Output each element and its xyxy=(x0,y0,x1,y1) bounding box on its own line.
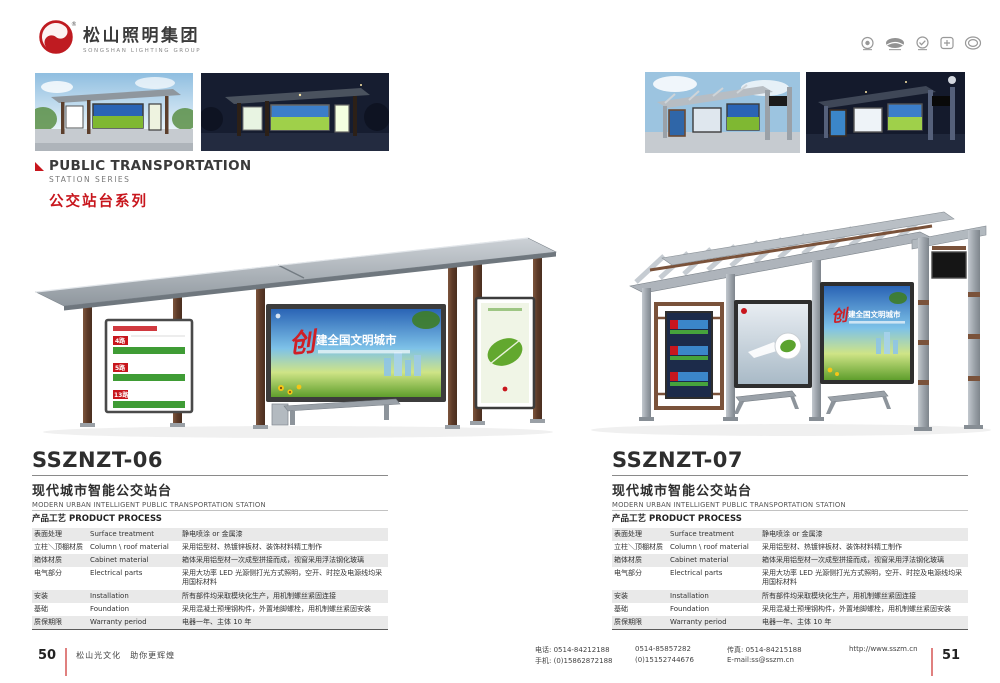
row-label-en: Warranty period xyxy=(670,618,762,627)
row-label-cn: 箱体材质 xyxy=(32,556,90,565)
render-ssznzt-07: 创 建全国文明城市 xyxy=(576,200,996,449)
product-name-en: MODERN URBAN INTELLIGENT PUBLIC TRANSPOR… xyxy=(612,501,968,509)
row-description: 采用铝型材、热镀锌板材、装饰材料精工制作 xyxy=(762,543,968,552)
billboard-lightbox: 创 建全国文明城市 xyxy=(266,304,446,402)
product-name-en: MODERN URBAN INTELLIGENT PUBLIC TRANSPOR… xyxy=(32,501,388,509)
footer-right: 51 xyxy=(931,648,960,676)
fax-line: 传真: 0514-84215188 xyxy=(727,645,849,656)
process-table-07: 产品工艺 PRODUCT PROCESS 表面处理 Surface treatm… xyxy=(612,510,968,630)
section-title-en: PUBLIC TRANSPORTATION xyxy=(49,158,251,174)
row-description: 静电喷涂 or 金属漆 xyxy=(762,530,968,539)
company-logo: ® 松山照明集团 SONGSHAN LIGHTING GROUP xyxy=(38,18,201,56)
photo-shelter06-night xyxy=(201,72,389,152)
product-code: SSZNZT-06 xyxy=(32,448,388,472)
table-title: 产品工艺 PRODUCT PROCESS xyxy=(612,510,968,528)
table-body: 表面处理 Surface treatment 静电喷涂 or 金属漆 立柱＼顶棚… xyxy=(612,528,968,629)
leaf-poster-lightbox xyxy=(476,298,534,408)
product-name-cn: 现代城市智能公交站台 xyxy=(612,480,968,499)
photo-shelter07-night xyxy=(806,72,965,153)
row-description: 电器一年、主体 10 年 xyxy=(182,618,388,627)
logo-swirl-icon: ® xyxy=(38,18,76,56)
table-row: 箱体材质 Cabinet material 箱体采用铝型材一次成型拼接而成，视窗… xyxy=(612,554,968,567)
row-label-en: Installation xyxy=(670,592,762,601)
row-label-en: Column \ roof material xyxy=(90,543,182,552)
table-row: 质保期限 Warranty period 电器一年、主体 10 年 xyxy=(612,616,968,629)
trademark-symbol: ® xyxy=(71,21,76,28)
row-label-cn: 安装 xyxy=(32,592,90,601)
row-label-cn: 质保期限 xyxy=(32,618,90,627)
ground-shadow xyxy=(43,426,553,438)
page-number-left: 50 xyxy=(38,648,56,663)
divider xyxy=(32,475,388,476)
row-label-cn: 安装 xyxy=(612,592,670,601)
tel-2: 0514-85857282 xyxy=(635,645,727,656)
logo-text-en: SONGSHAN LIGHTING GROUP xyxy=(83,48,201,54)
red-divider-bar xyxy=(65,648,67,676)
row-label-cn: 质保期限 xyxy=(612,618,670,627)
table-row: 立柱＼顶棚材质 Column \ roof material 采用铝型材、热镀锌… xyxy=(32,541,388,554)
table-body: 表面处理 Surface treatment 静电喷涂 or 金属漆 立柱＼顶棚… xyxy=(32,528,388,629)
catalog-spread: ® 松山照明集团 SONGSHAN LIGHTING GROUP xyxy=(0,0,1000,683)
ad-headline: 建全国文明城市 xyxy=(316,333,397,347)
section-heading: PUBLIC TRANSPORTATION STATION SERIES 公交站… xyxy=(35,158,251,211)
mobile-2: (0)15152744676 xyxy=(635,656,727,667)
cert-badge-4-icon xyxy=(939,36,955,51)
page-number-right: 51 xyxy=(942,648,960,663)
row-description: 静电喷涂 or 金属漆 xyxy=(182,530,388,539)
red-divider-bar xyxy=(931,648,933,676)
tel-line: 电话: 0514-84212188 xyxy=(535,645,635,656)
table-row: 立柱＼顶棚材质 Column \ roof material 采用铝型材、热镀锌… xyxy=(612,541,968,554)
row-description: 箱体采用铝型材一次成型拼接而成，视窗采用浮法钢化玻璃 xyxy=(762,556,968,565)
row-label-cn: 表面处理 xyxy=(32,530,90,539)
route-badge-3: 13路 xyxy=(114,391,129,399)
cert-badge-2-icon xyxy=(884,36,906,51)
row-label-cn: 箱体材质 xyxy=(612,556,670,565)
row-description: 采用大功率 LED 光源侧打光方式照明，空开、时控及电源线均采用国标材料 xyxy=(182,569,388,587)
row-label-en: Warranty period xyxy=(90,618,182,627)
cert-badge-3-icon xyxy=(915,36,930,51)
row-label-cn: 基础 xyxy=(612,605,670,614)
section-marker-icon xyxy=(35,162,44,171)
row-description: 采用混凝土预埋钢构件，外置地脚螺栓，用机制螺丝紧固安装 xyxy=(762,605,968,614)
row-label-en: Foundation xyxy=(670,605,762,614)
email: E-mail:ss@sszm.cn xyxy=(727,656,849,667)
row-description: 采用铝型材、热镀锌板材、装饰材料精工制作 xyxy=(182,543,388,552)
route-badge-1: 4路 xyxy=(115,337,126,345)
row-description: 所有部件均采取模块化生产，用机制螺丝紧固连接 xyxy=(762,592,968,601)
row-label-cn: 基础 xyxy=(32,605,90,614)
row-label-en: Column \ roof material xyxy=(670,543,762,552)
bus-route-board: 4路 5路 13路 xyxy=(106,320,192,412)
footer-left: 50 松山光文化 助你更辉煌 xyxy=(38,648,175,676)
table-row: 箱体材质 Cabinet material 箱体采用铝型材一次成型拼接而成，视窗… xyxy=(32,554,388,567)
render-ssznzt-06: 4路 5路 13路 创 建全国文明城市 xyxy=(28,208,563,452)
product-block-06: SSZNZT-06 现代城市智能公交站台 MODERN URBAN INTELL… xyxy=(32,448,388,509)
row-label-cn: 表面处理 xyxy=(612,530,670,539)
table-row: 表面处理 Surface treatment 静电喷涂 or 金属漆 xyxy=(32,528,388,541)
footer-contact: 电话: 0514-84212188 0514-85857282 传真: 0514… xyxy=(535,645,959,667)
table-row: 安装 Installation 所有部件均采取模块化生产，用机制螺丝紧固连接 xyxy=(612,590,968,603)
cert-badge-5-icon xyxy=(964,36,982,51)
row-label-en: Cabinet material xyxy=(670,556,762,565)
section-subtitle-en: STATION SERIES xyxy=(49,175,251,184)
row-label-en: Foundation xyxy=(90,605,182,614)
process-table-06: 产品工艺 PRODUCT PROCESS 表面处理 Surface treatm… xyxy=(32,510,388,630)
table-row: 电气部分 Electrical parts 采用大功率 LED 光源侧打光方式照… xyxy=(32,567,388,589)
product-code: SSZNZT-07 xyxy=(612,448,968,472)
row-label-en: Electrical parts xyxy=(90,569,182,587)
row-label-cn: 电气部分 xyxy=(32,569,90,587)
row-description: 采用混凝土预埋钢构件，外置地脚螺栓，用机制螺丝紧固安装 xyxy=(182,605,388,614)
row-label-en: Cabinet material xyxy=(90,556,182,565)
product-name-cn: 现代城市智能公交站台 xyxy=(32,480,388,499)
photo-shelter06-day xyxy=(35,72,193,152)
mobile-line: 手机: (0)15862872188 xyxy=(535,656,635,667)
table-row: 电气部分 Electrical parts 采用大功率 LED 光源侧打光方式照… xyxy=(612,567,968,589)
row-label-cn: 立柱＼顶棚材质 xyxy=(32,543,90,552)
bench xyxy=(272,399,400,425)
photo-shelter07-day xyxy=(645,72,800,153)
row-label-en: Electrical parts xyxy=(670,569,762,587)
ad-headline: 建全国文明城市 xyxy=(847,309,901,319)
table-row: 基础 Foundation 采用混凝土预埋钢构件，外置地脚螺栓，用机制螺丝紧固安… xyxy=(612,603,968,616)
lattice-route-panel xyxy=(656,304,722,408)
logo-text-cn: 松山照明集团 xyxy=(83,21,201,46)
row-label-cn: 电气部分 xyxy=(612,569,670,587)
portal-frame xyxy=(912,226,986,431)
cert-badge-1-icon xyxy=(860,36,875,51)
table-row: 基础 Foundation 采用混凝土预埋钢构件，外置地脚螺栓，用机制螺丝紧固安… xyxy=(32,603,388,616)
certification-badges xyxy=(860,36,982,51)
row-description: 箱体采用铝型材一次成型拼接而成，视窗采用浮法钢化玻璃 xyxy=(182,556,388,565)
billboard-one xyxy=(734,300,812,388)
divider xyxy=(612,475,968,476)
billboard-two: 创 建全国文明城市 xyxy=(820,282,914,384)
table-title: 产品工艺 PRODUCT PROCESS xyxy=(32,510,388,528)
row-label-en: Surface treatment xyxy=(90,530,182,539)
table-row: 安装 Installation 所有部件均采取模块化生产，用机制螺丝紧固连接 xyxy=(32,590,388,603)
row-description: 采用大功率 LED 光源侧打光方式照明，空开、时控及电源线均采用国标材料 xyxy=(762,569,968,587)
row-label-en: Surface treatment xyxy=(670,530,762,539)
table-row: 表面处理 Surface treatment 静电喷涂 or 金属漆 xyxy=(612,528,968,541)
row-label-cn: 立柱＼顶棚材质 xyxy=(612,543,670,552)
product-block-07: SSZNZT-07 现代城市智能公交站台 MODERN URBAN INTELL… xyxy=(612,448,968,509)
table-row: 质保期限 Warranty period 电器一年、主体 10 年 xyxy=(32,616,388,629)
route-badge-2: 5路 xyxy=(115,364,126,372)
row-label-en: Installation xyxy=(90,592,182,601)
row-description: 所有部件均采取模块化生产，用机制螺丝紧固连接 xyxy=(182,592,388,601)
row-description: 电器一年、主体 10 年 xyxy=(762,618,968,627)
footer-tagline: 松山光文化 助你更辉煌 xyxy=(76,650,175,661)
